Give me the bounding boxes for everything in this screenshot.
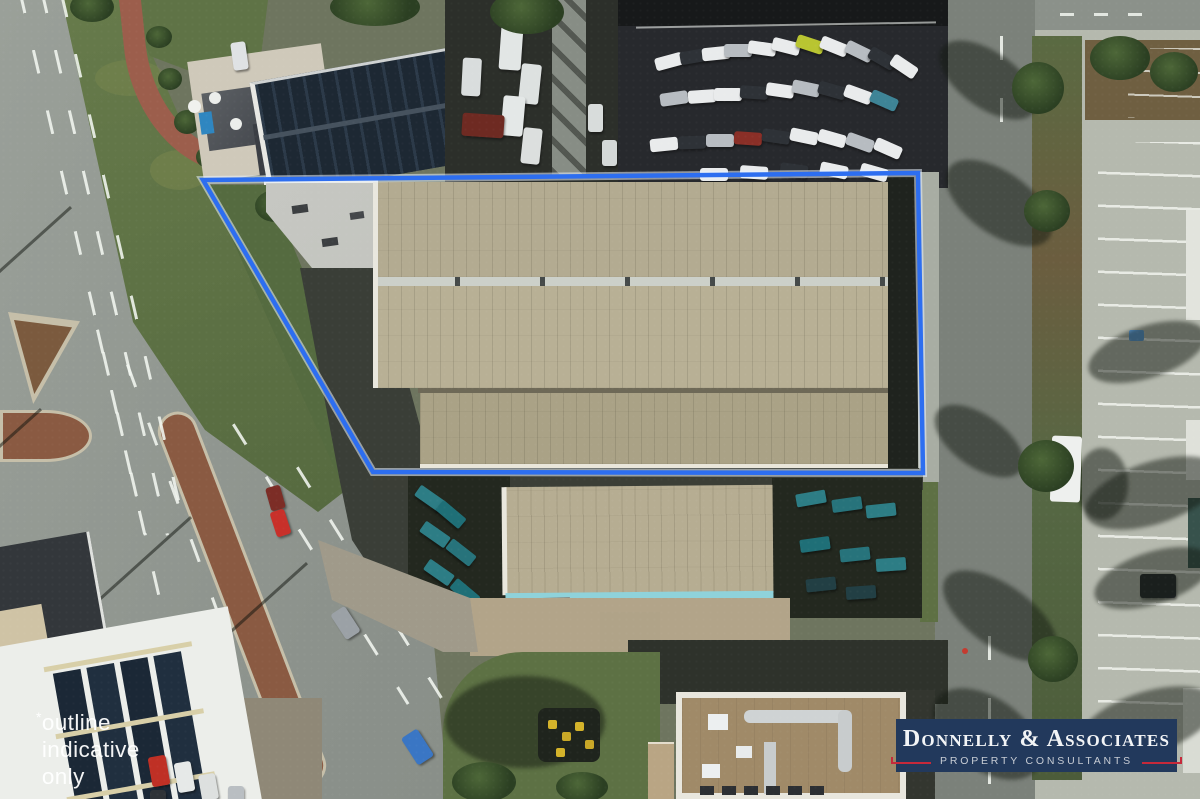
aerial-photo: *outline indicative only Donnelly & Asso… [0,0,1200,799]
logo-bracket-left [891,757,931,764]
logo: Donnelly & Associates PROPERTY CONSULTAN… [896,719,1177,772]
logo-tagline-row: PROPERTY CONSULTANTS [891,755,1182,767]
property-outline-line [203,173,923,473]
disclaimer-label: outline indicative only [42,709,140,790]
property-outline-halo [203,173,923,473]
logo-bracket-right [1142,757,1182,764]
property-outline [0,0,1200,799]
logo-tagline: PROPERTY CONSULTANTS [940,755,1133,767]
disclaimer-text: *outline indicative only [36,709,42,736]
logo-company-name: Donnelly & Associates [903,727,1170,751]
